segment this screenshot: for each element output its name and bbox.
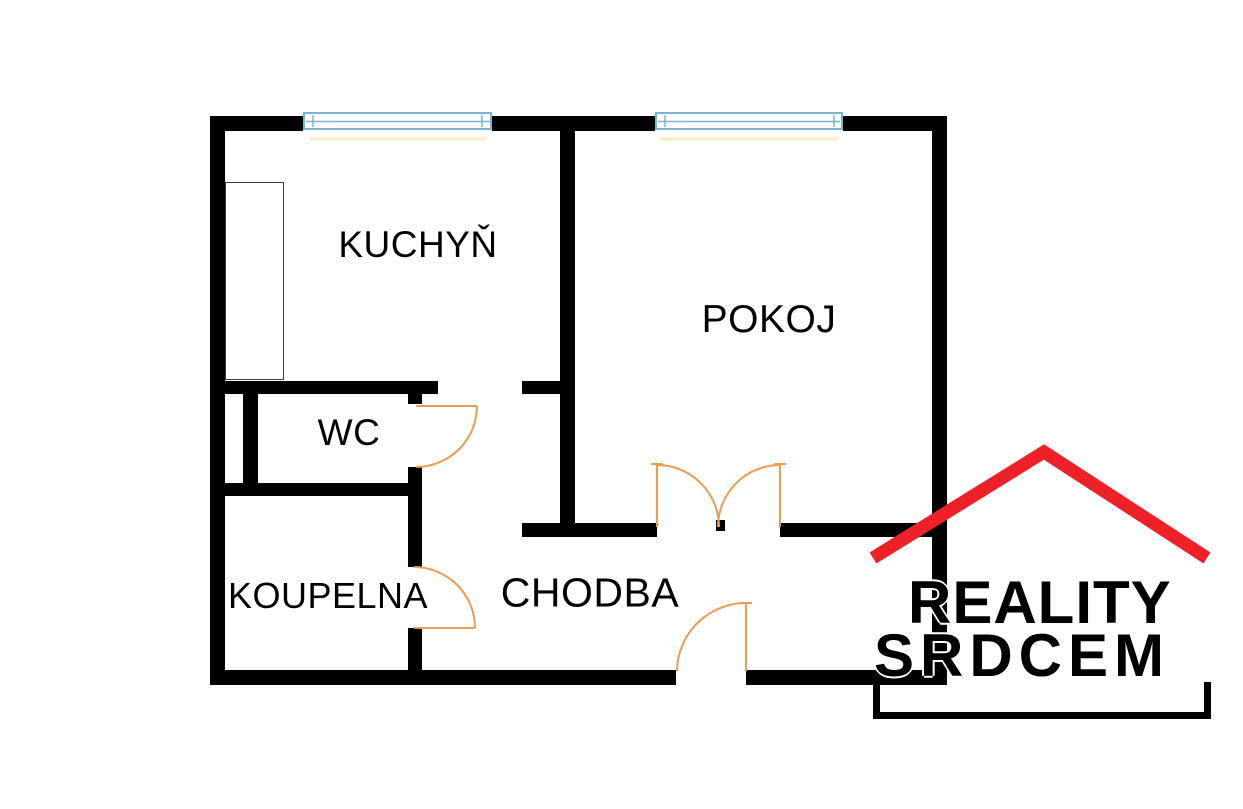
wall-koupelna-east-upper [408, 496, 422, 567]
logo-roof-icon [873, 452, 1207, 558]
kitchen-cabinet-outline [225, 182, 284, 380]
door-entrance-icon [677, 603, 752, 671]
wall-koupelna-east-lower [408, 628, 422, 670]
logo-house-base-icon [873, 682, 1211, 719]
floor-plan-canvas: KUCHYŇ POKOJ WC KOUPELNA CHODBA REALITY … [0, 0, 1243, 809]
wall-chodba-pokoj-west [522, 523, 657, 537]
room-label-wc: WC [318, 412, 381, 454]
wall-wc-door-jamb-south [408, 467, 422, 483]
window-kuchyn-icon [304, 113, 491, 139]
wall-wc-door-jamb-north [408, 392, 422, 404]
wall-bottom-left-segment [210, 670, 676, 685]
room-label-pokoj: POKOJ [702, 298, 837, 342]
door-pokoj-double-icon [651, 464, 786, 527]
wall-double-door-center-stop [716, 520, 725, 531]
room-label-chodba: CHODBA [501, 570, 679, 617]
room-label-kuchyn: KUCHYŇ [338, 224, 497, 266]
logo-text-line2: SRDCEM [874, 626, 1170, 686]
room-label-koupelna: KOUPELNA [228, 575, 428, 617]
wall-wc-south [210, 483, 422, 496]
wall-shaft-divider [243, 381, 258, 496]
wall-chodba-pokoj-east [780, 523, 932, 537]
door-wc-icon [416, 406, 477, 467]
wall-left-exterior [210, 116, 225, 685]
wall-kuchyn-pokoj-divider [560, 116, 575, 537]
window-pokoj-icon [656, 113, 842, 139]
wall-kuchyn-doorway-stub [522, 381, 564, 394]
